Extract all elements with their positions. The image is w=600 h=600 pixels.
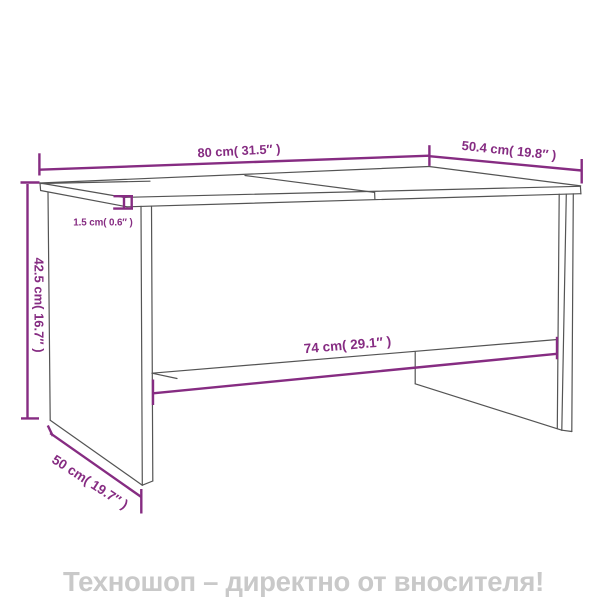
svg-text:42.5 cm( 16.7″ ): 42.5 cm( 16.7″ ) [32,257,47,352]
svg-text:Техношоп – директно от вносите: Техношоп – директно от вносителя! [63,566,544,597]
svg-text:1.5 cm( 0.6″ ): 1.5 cm( 0.6″ ) [73,217,132,228]
